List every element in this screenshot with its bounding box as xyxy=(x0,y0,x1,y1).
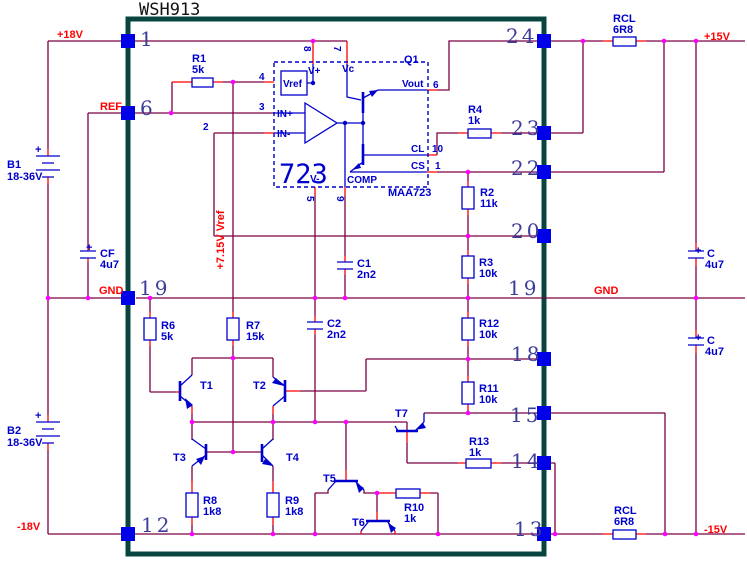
pin-number: 22 xyxy=(511,156,542,180)
net-label-ref: REF xyxy=(100,101,122,113)
net-label-vref-rail: +7.15V Vref xyxy=(215,210,227,269)
resistor-r11: R11 10k xyxy=(462,382,499,406)
ic-pin2: 2 xyxy=(203,122,209,133)
resistor-value: 5k xyxy=(192,64,205,76)
net-label-minus15: -15V xyxy=(704,524,728,536)
capacitor-c-top: + C 4u7 xyxy=(688,245,724,271)
ic-pin3: 3 xyxy=(259,102,265,113)
pin-number: 19 xyxy=(508,276,539,300)
net-labels: +18V REF GND -18V +15V GND -15V +7.15V V… xyxy=(17,29,731,536)
pin-number: 6 xyxy=(140,96,156,120)
resistor-value: 1k8 xyxy=(203,506,221,518)
resistor-value: 1k xyxy=(404,513,417,525)
transistor-t1: T1 xyxy=(180,375,213,409)
resistor-value: 1k8 xyxy=(285,506,303,518)
capacitor-value: 4u7 xyxy=(100,259,119,271)
schematic-canvas: WSH913 xyxy=(0,0,747,567)
ic-pin7: 7 xyxy=(331,46,342,52)
pin-number: 23 xyxy=(511,116,542,140)
pin-number: 24 xyxy=(506,24,537,48)
resistor-r8: R8 1k8 xyxy=(186,493,221,518)
pin-number: 20 xyxy=(511,219,542,243)
ic-pin1: 1 xyxy=(435,161,441,172)
capacitor-c1: C1 2n2 xyxy=(337,258,376,281)
battery-ref: B1 xyxy=(7,159,21,171)
pin-13: 13 xyxy=(514,517,551,541)
net-label-plus18: +18V xyxy=(57,29,84,41)
polarity-plus: + xyxy=(695,245,701,257)
capacitor-value: 2n2 xyxy=(327,329,346,341)
resistor-r1: R1 5k xyxy=(192,53,213,87)
pin-number: 18 xyxy=(511,342,542,366)
capacitor-value: 4u7 xyxy=(705,346,724,358)
pin-number: 14 xyxy=(511,449,542,473)
ic-cs-label: CS xyxy=(411,161,425,172)
resistor-value: 10k xyxy=(479,394,498,406)
transistor-t6: T6 xyxy=(352,517,396,533)
resistor-value: 10k xyxy=(479,329,498,341)
resistor-r10: R10 1k xyxy=(396,489,424,525)
battery-value: 18-36V xyxy=(7,437,43,449)
transistor-t5: T5 xyxy=(323,473,364,493)
pin-number: 15 xyxy=(510,403,541,427)
net-label-minus18: -18V xyxy=(17,521,41,533)
ic-pin6: 6 xyxy=(433,80,439,91)
ic-cl-label: CL xyxy=(411,144,424,155)
ic-vref-label: Vref xyxy=(283,79,303,90)
polarity-plus: + xyxy=(86,242,92,254)
battery-ref: B2 xyxy=(7,425,21,437)
transistor-t2: T2 xyxy=(253,377,285,406)
resistor-value: 1k xyxy=(468,115,481,127)
ic-pin5: 5 xyxy=(304,196,315,202)
capacitor-value: 4u7 xyxy=(705,259,724,271)
battery-b1: + B1 18-36V xyxy=(7,144,60,183)
battery-value: 18-36V xyxy=(7,171,43,183)
resistor-r4: R4 1k xyxy=(468,104,491,138)
resistor-value: 10k xyxy=(479,268,498,280)
vref-block: Vref xyxy=(281,71,307,95)
resistor-r2: R2 11k xyxy=(462,187,499,210)
resistor-value: 11k xyxy=(480,198,499,210)
resistor-r9: R9 1k8 xyxy=(267,493,303,518)
transistor-ref: T3 xyxy=(173,452,186,464)
polarity-plus: + xyxy=(35,144,41,156)
resistor-rcl-top: RCL 6R8 xyxy=(613,13,636,46)
ic-vout-label: Vout xyxy=(402,79,424,90)
resistor-r13: R13 1k xyxy=(466,436,491,468)
resistor-r3: R3 10k xyxy=(462,256,498,280)
battery-b2: + B2 18-36V xyxy=(7,410,60,449)
schematic: WSH913 xyxy=(0,0,747,567)
pin-number: 1 xyxy=(140,27,156,51)
transistor-t3: T3 xyxy=(173,439,206,466)
ic-comp-label: COMP xyxy=(347,175,377,186)
resistor-r12: R12 10k xyxy=(462,318,499,341)
ic-inminus-label: IN- xyxy=(277,129,290,140)
q1-label: Q1 xyxy=(404,54,419,66)
resistor-r7: R7 15k xyxy=(227,318,265,343)
ic-pin4: 4 xyxy=(259,72,265,83)
ic-inplus-label: IN+ xyxy=(277,109,293,120)
transistor-ref: T2 xyxy=(253,380,266,392)
ic-part-number: MAA723 xyxy=(388,187,431,199)
transistor-ref: T7 xyxy=(395,408,408,420)
resistor-value: 6R8 xyxy=(613,24,633,36)
ic-pin9: 9 xyxy=(334,196,345,202)
resistor-value: 6R8 xyxy=(614,516,634,528)
net-label-gnd-left: GND xyxy=(99,285,124,297)
net-label-gnd-right: GND xyxy=(594,285,619,297)
ic-maa723: Vref V+ Vc IN+ IN- V- COMP Vout CL CS 72… xyxy=(203,46,444,202)
resistor-value: 1k xyxy=(469,447,482,459)
ic-vc-label: Vc xyxy=(342,64,355,75)
capacitor-c-bottom: + C 4u7 xyxy=(688,332,724,358)
ic-big-label: 723 xyxy=(279,159,328,190)
ic-pin10: 10 xyxy=(432,144,444,155)
transistor-t4: T4 xyxy=(262,439,300,466)
resistor-value: 5k xyxy=(161,331,174,343)
resistor-value: 15k xyxy=(246,331,265,343)
resistor-r6: R6 5k xyxy=(144,318,175,343)
capacitor-c2: C2 2n2 xyxy=(307,318,346,341)
capacitor-cf: + CF 4u7 xyxy=(80,242,119,271)
resistor-rcl-bottom: RCL 6R8 xyxy=(613,505,637,539)
polarity-plus: + xyxy=(35,410,41,422)
transistor-ref: T1 xyxy=(200,380,213,392)
ic-vplus-label: V+ xyxy=(308,66,321,77)
transistor-t7: T7 xyxy=(395,408,426,431)
pin-number: 13 xyxy=(514,517,545,541)
transistor-ref: T4 xyxy=(286,452,300,464)
transistor-ref: T6 xyxy=(352,517,365,529)
pin-number: 19 xyxy=(139,276,170,300)
transistor-ref: T5 xyxy=(323,473,336,485)
capacitor-value: 2n2 xyxy=(357,269,376,281)
module-title: WSH913 xyxy=(139,0,200,20)
pin-19-right: 19 xyxy=(508,276,539,300)
net-label-plus15: +15V xyxy=(704,31,731,43)
ic-pin8: 8 xyxy=(301,46,312,52)
polarity-plus: + xyxy=(695,332,701,344)
pin-number: 12 xyxy=(141,513,172,537)
